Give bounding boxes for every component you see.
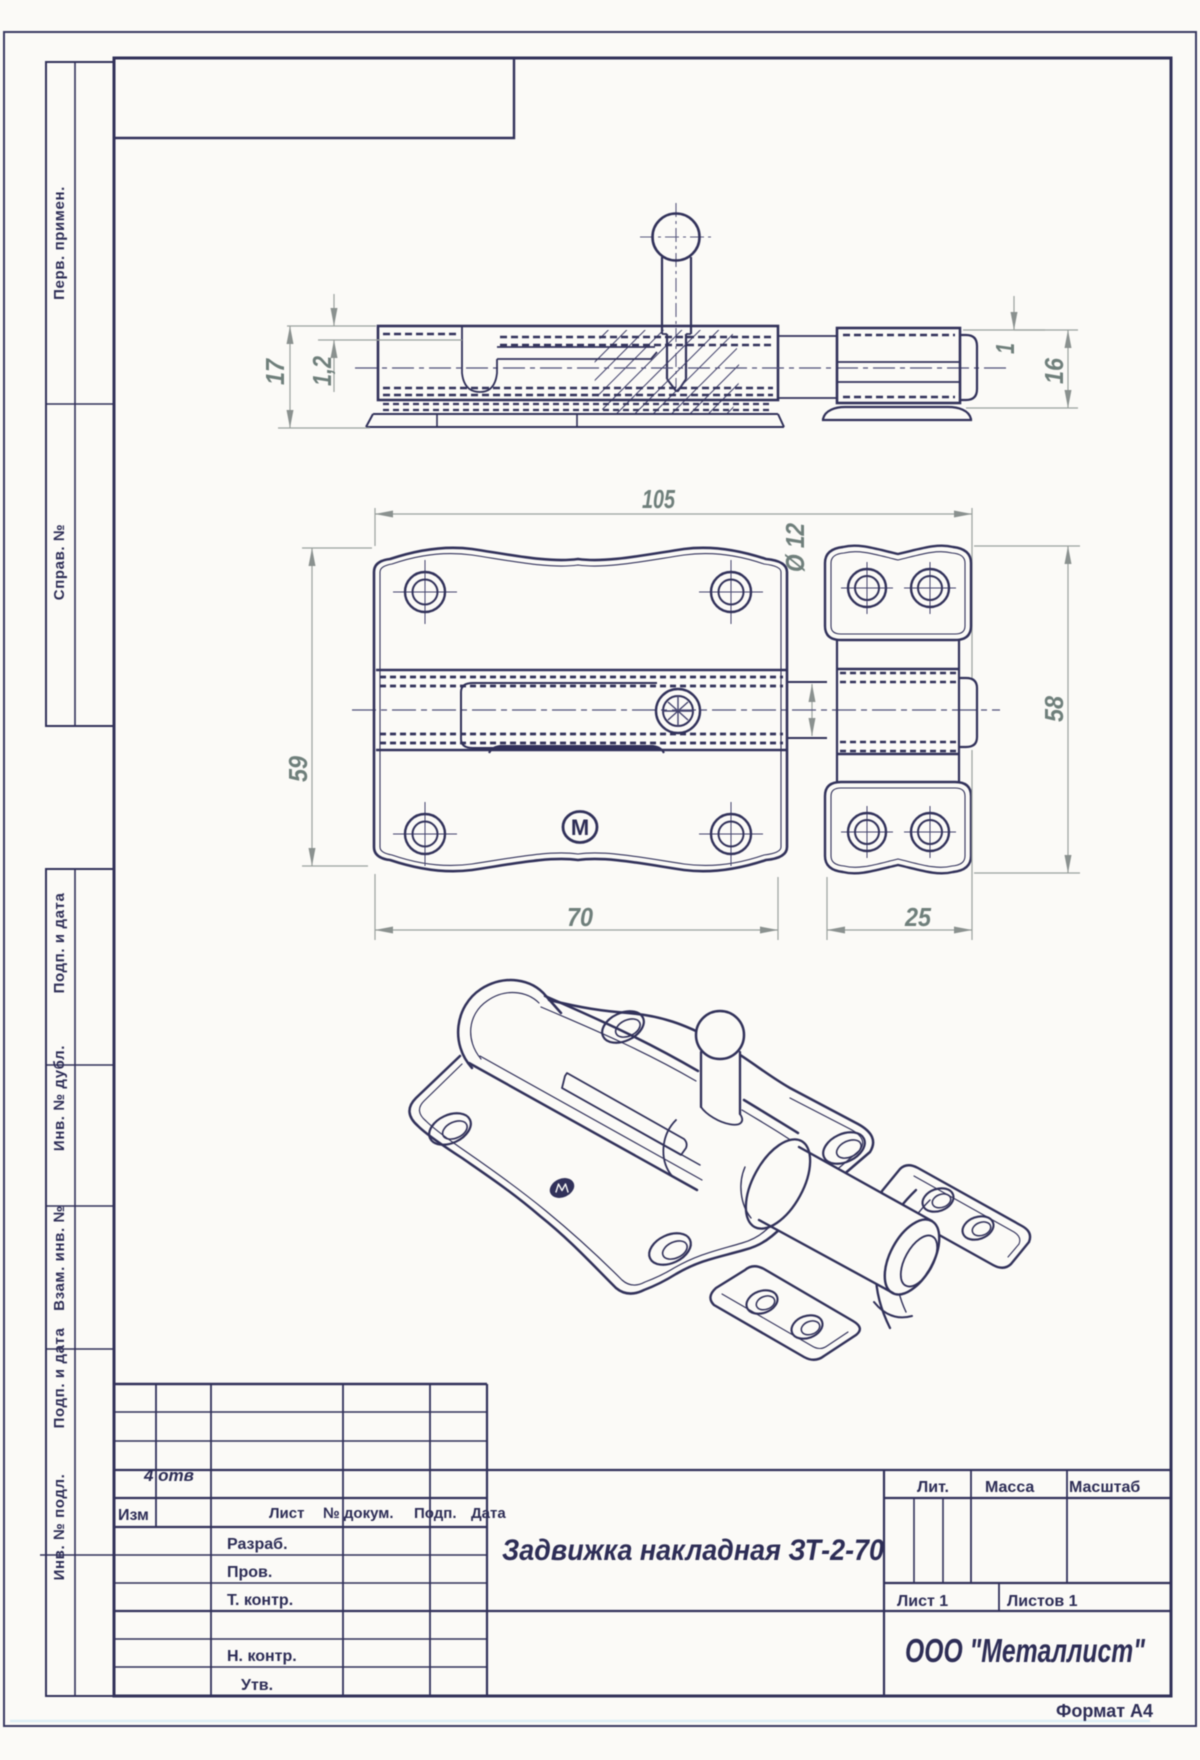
svg-text:Справ. №: Справ. №	[51, 524, 68, 600]
svg-text:58: 58	[1039, 696, 1069, 722]
svg-text:Листов 1: Листов 1	[1007, 1593, 1078, 1610]
svg-text:Инв. № дубл.: Инв. № дубл.	[51, 1045, 68, 1151]
svg-text:Задвижка накладная ЗТ-2-70: Задвижка накладная ЗТ-2-70	[502, 1534, 884, 1567]
svg-text:1,2: 1,2	[307, 356, 337, 386]
svg-text:17: 17	[260, 358, 290, 385]
svg-text:№ докум.: № докум.	[323, 1505, 394, 1522]
svg-text:Т. контр.: Т. контр.	[227, 1592, 293, 1609]
svg-text:Инв. № подл.: Инв. № подл.	[51, 1474, 68, 1581]
svg-text:Подп. и дата: Подп. и дата	[51, 893, 68, 994]
svg-text:Дата: Дата	[471, 1505, 506, 1522]
svg-text:Взам. инв. №: Взам. инв. №	[51, 1205, 68, 1311]
svg-text:Лист: Лист	[269, 1505, 304, 1522]
svg-text:4 отв: 4 отв	[143, 1466, 194, 1485]
svg-text:Изм: Изм	[118, 1507, 149, 1524]
svg-text:Лит.: Лит.	[917, 1479, 949, 1496]
svg-text:M: M	[571, 815, 589, 840]
svg-text:Разраб.: Разраб.	[227, 1536, 288, 1553]
svg-text:Н. контр.: Н. контр.	[227, 1648, 297, 1665]
svg-text:105: 105	[642, 484, 675, 514]
svg-text:1: 1	[990, 343, 1020, 354]
svg-text:Подп. и дата: Подп. и дата	[51, 1328, 68, 1429]
svg-text:70: 70	[567, 902, 593, 932]
svg-text:Лист 1: Лист 1	[897, 1593, 948, 1610]
svg-text:Масштаб: Масштаб	[1069, 1479, 1140, 1496]
svg-text:ООО "Металлист": ООО "Металлист"	[905, 1632, 1145, 1669]
svg-text:25: 25	[904, 902, 931, 932]
svg-text:Подп.: Подп.	[414, 1505, 457, 1522]
svg-text:Пров.: Пров.	[227, 1564, 272, 1581]
svg-text:Масса: Масса	[985, 1479, 1034, 1496]
svg-text:16: 16	[1039, 358, 1069, 384]
svg-text:Перв. примен.: Перв. примен.	[51, 186, 68, 300]
svg-text:Формат А4: Формат А4	[1056, 1701, 1153, 1721]
svg-text:Утв.: Утв.	[241, 1677, 273, 1694]
svg-text:59: 59	[283, 756, 313, 782]
